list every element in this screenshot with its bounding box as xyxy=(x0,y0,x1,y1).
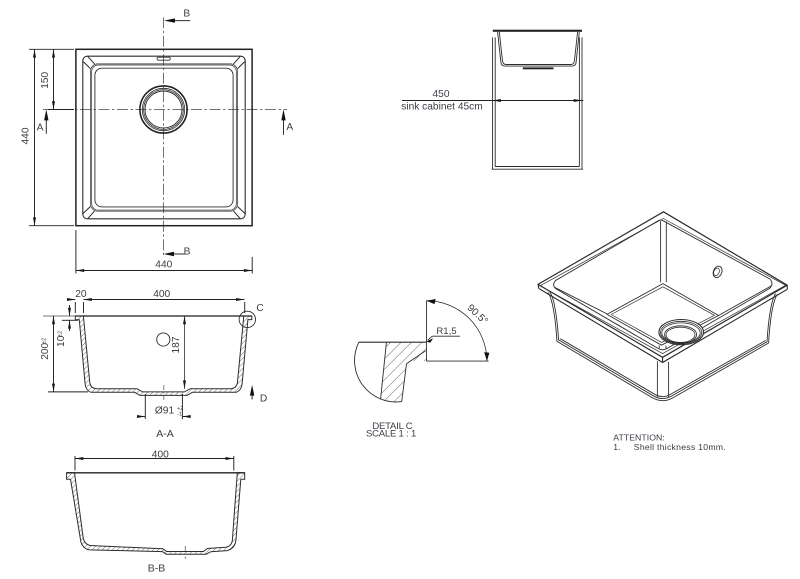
svg-text:B: B xyxy=(183,8,190,19)
svg-text:450: 450 xyxy=(433,89,450,100)
svg-text:B-B: B-B xyxy=(148,563,166,575)
svg-text:440: 440 xyxy=(21,127,32,144)
svg-text:400: 400 xyxy=(153,289,170,300)
svg-text:150: 150 xyxy=(40,71,51,88)
svg-text:B: B xyxy=(184,247,191,258)
svg-text:187: 187 xyxy=(171,336,182,353)
svg-text:Ø91: Ø91 xyxy=(155,406,175,417)
svg-text:20: 20 xyxy=(75,289,87,300)
svg-text:400: 400 xyxy=(152,449,169,460)
svg-text:C: C xyxy=(256,303,263,314)
svg-text:±2: ±2 xyxy=(42,338,48,344)
svg-text:sink cabinet 45cm: sink cabinet 45cm xyxy=(401,101,483,112)
svg-text:±2: ±2 xyxy=(58,331,64,337)
svg-text:1.: 1. xyxy=(613,442,620,452)
svg-text:D: D xyxy=(260,394,267,405)
svg-text:Shell thickness 10mm.: Shell thickness 10mm. xyxy=(634,442,726,452)
svg-text:A: A xyxy=(286,122,293,133)
svg-text:440: 440 xyxy=(155,259,172,270)
svg-text:A: A xyxy=(37,123,44,134)
svg-text:R1,5: R1,5 xyxy=(436,326,456,337)
svg-text:-1: -1 xyxy=(177,412,182,418)
svg-text:200: 200 xyxy=(40,342,51,359)
svg-text:ATTENTION:: ATTENTION: xyxy=(613,433,665,443)
svg-text:A-A: A-A xyxy=(156,428,174,440)
svg-text:SCALE 1 : 1: SCALE 1 : 1 xyxy=(366,429,416,440)
